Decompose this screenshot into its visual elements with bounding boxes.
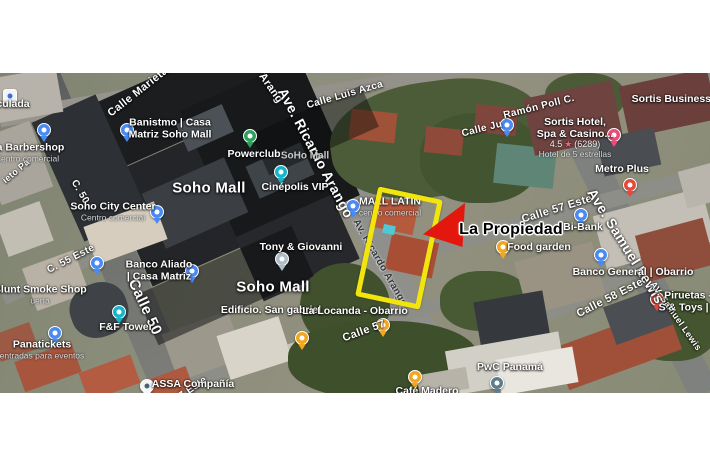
poi-pin-tony-giovanni[interactable] [275,252,289,266]
screenshot-frame: La Propiedad Calle MarietaCalle Luis Azc… [0,0,710,473]
poi-label-barbershop[interactable]: ria BarbershopCentro comercial [0,143,64,164]
poi-pin-food-pin-locanda[interactable] [295,331,309,345]
poi-pin-cafe-madero[interactable] [408,370,422,384]
area-label-soho-mall: Soho Mall [236,279,310,296]
poi-pin-ff-tower[interactable] [112,305,126,319]
red-roof-house [424,126,465,156]
poi-label-bi-bank[interactable]: Bi-Bank [563,222,603,234]
property-label: La Propiedad [459,221,563,239]
area-label-soho-mall: Soho Mall [172,180,246,197]
poi-label-banco-general[interactable]: Banco General | Obarrio [573,267,694,279]
poi-label-cafe-madero[interactable]: Café Madero [395,386,458,393]
poi-label-inmaculada[interactable]: culada [0,99,30,111]
poi-label-la-locanda[interactable]: La Locanda - Obarrio [302,306,408,318]
poi-pin-cinepolis[interactable] [274,165,288,179]
poi-label-ff-tower[interactable]: F&F Tower [99,322,152,334]
poi-label-banistmo[interactable]: Banistmo | CasaMatriz Soho Mall [129,117,212,140]
bottom-margin [0,393,710,473]
poi-pin-barbershop[interactable] [37,123,51,137]
poi-label-panatickets[interactable]: Panaticketsentradas para eventos [0,340,84,361]
poi-label-metro-plus[interactable]: Metro Plus [595,164,649,176]
poi-label-soho-mall-dim[interactable]: SoHo Mall [281,151,329,162]
poi-pin-gas-station[interactable] [90,256,104,270]
poi-label-powerclub[interactable]: Powerclub [227,149,280,161]
poi-label-blunt-smoke-shop[interactable]: Blunt Smoke Shopuería [0,285,87,306]
poi-label-piruetas[interactable]: Piruetas -S & Toys | 8 [659,290,710,313]
poi-label-sortis-hotel[interactable]: Sortis Hotel,Spa & Casino...4.5★(6289)Ho… [537,117,613,159]
poi-label-soho-city-center[interactable]: Soho City CenterCentro comercial [70,202,155,223]
poi-label-pwc-panama[interactable]: PwC Panamá [477,362,543,374]
poi-pin-bi-bank[interactable] [574,208,588,222]
poi-label-assa[interactable]: ASSA Compañía [152,379,234,391]
poi-pin-banco-general[interactable] [594,248,608,262]
poi-label-sortis-business[interactable]: Sortis Business T [632,94,710,106]
poi-pin-metro-plus[interactable] [623,178,637,192]
red-roof-house [79,354,141,393]
top-margin [0,0,710,73]
poi-pin-pwc-panama[interactable] [490,376,504,390]
poi-pin-powerclub[interactable] [243,129,257,143]
poi-label-cinepolis[interactable]: Cinépolis VIP [261,182,328,194]
map-canvas[interactable]: La Propiedad Calle MarietaCalle Luis Azc… [0,73,710,393]
poi-label-banco-aliado[interactable]: Banco Aliado| Casa Matriz [126,259,193,282]
poi-label-tony-giovanni[interactable]: Tony & Giovanni [260,242,343,254]
building-block [0,201,54,257]
poi-label-food-garden[interactable]: Food garden [507,242,571,254]
